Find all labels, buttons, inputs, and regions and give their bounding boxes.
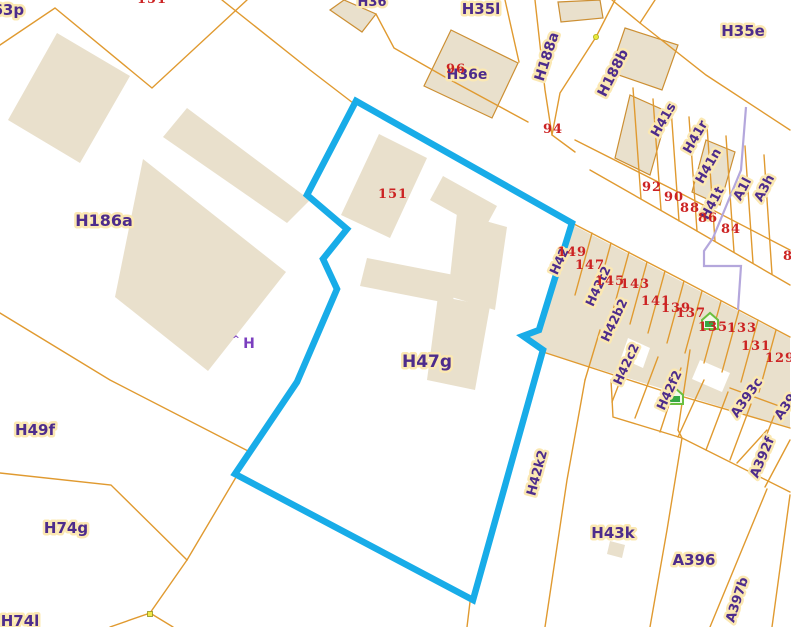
parcel-boundary-line (612, 0, 655, 23)
house-number-label: 143 (620, 277, 650, 292)
map-annotation-label: ^ (232, 335, 240, 345)
house-number-label: 96 (446, 62, 466, 77)
building-footprint (448, 213, 507, 310)
cadastral-map-viewport[interactable]: H63pH36H35lH35eH36eH188aH188bH41sH41rH41… (0, 0, 791, 627)
house-number-label: 147 (575, 258, 605, 273)
house-number-label: 86 (698, 211, 718, 226)
parcel-label: A392f (748, 435, 779, 481)
parcel-boundary-line (772, 495, 790, 627)
house-number-label: 151 (378, 187, 408, 202)
parcel-boundary-line (222, 0, 353, 103)
parcel-label: H43k (591, 524, 635, 542)
parcel-boundary-line (650, 438, 682, 627)
parcel-label: A3h (752, 172, 779, 204)
house-number-label: 82 (783, 249, 791, 264)
house-number-label: 135 (698, 320, 728, 335)
yellow-point-marker[interactable] (593, 34, 598, 39)
parcel-label: H35e (721, 22, 765, 40)
buildings-layer (8, 0, 790, 558)
parcel-boundary-line (0, 473, 187, 560)
parcel-label: H35l (462, 0, 501, 18)
parcel-label: H63p (0, 1, 24, 19)
parcel-label: A396 (673, 551, 716, 569)
building-footprint (341, 134, 427, 238)
parcel-label: H47g (402, 352, 452, 372)
yellow-node-marker[interactable] (148, 612, 153, 617)
house-number-label: 137 (676, 306, 706, 321)
house-number-label: 133 (727, 321, 757, 336)
cadastral-map-canvas[interactable]: H63pH36H35lH35eH36eH188aH188bH41sH41rH41… (0, 0, 791, 627)
house-number-label: 84 (721, 222, 741, 237)
house-number-label: 129 (765, 351, 791, 366)
building-footprint (607, 541, 625, 558)
parcel-boundary-line (505, 0, 519, 62)
parcel-label: H36 (358, 0, 387, 10)
building-footprint (558, 0, 603, 22)
parcel-boundary-line (545, 380, 585, 627)
parcel-boundary-line (745, 146, 753, 263)
building-footprint (427, 296, 490, 390)
parcel-label: H74g (44, 519, 88, 537)
parcel-label: A1l (731, 175, 755, 203)
building-footprint (360, 258, 459, 304)
parcel-boundary-line (110, 560, 187, 627)
parcel-boundary-line (150, 613, 173, 627)
house-number-label: 92 (642, 180, 662, 195)
map-annotation-label: H (243, 336, 255, 352)
parcel-label: H42k2 (524, 449, 551, 498)
parcel-boundary-line (467, 602, 470, 627)
building-footprint (8, 33, 130, 163)
parcel-label: H188a (532, 30, 563, 83)
parcel-label: H49f (15, 421, 55, 439)
parcel-label: H74l (1, 612, 40, 627)
parcel-label: H186a (75, 211, 133, 230)
house-number-label: 151 (137, 0, 167, 7)
house-number-label: 94 (543, 122, 563, 137)
